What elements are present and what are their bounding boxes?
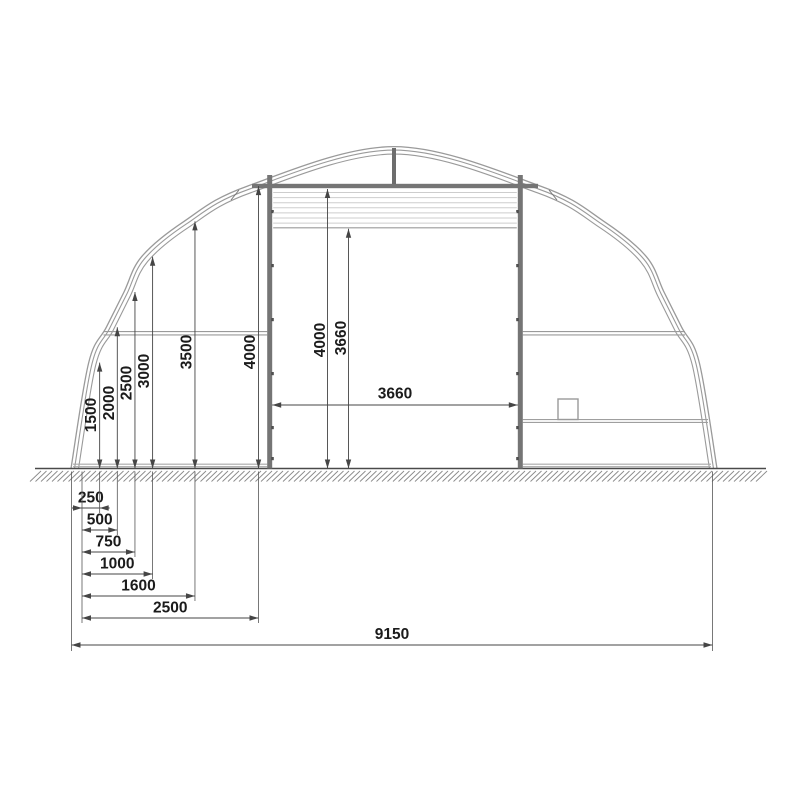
ground-hatch-stroke: [360, 471, 371, 482]
ground-hatch-stroke: [520, 471, 531, 482]
ground-hatch-stroke: [355, 471, 366, 482]
ground-hatch-stroke: [47, 471, 58, 482]
ground-hatch-stroke: [569, 471, 580, 482]
ground-hatch-stroke: [685, 471, 696, 482]
ground-hatch-stroke: [674, 471, 685, 482]
ground-hatch-stroke: [36, 471, 47, 482]
dimension-arrow-right: [126, 549, 135, 554]
ground-hatch-stroke: [531, 471, 542, 482]
ground-hatch-stroke: [564, 471, 575, 482]
ground-hatch-stroke: [206, 471, 217, 482]
ground-hatch-stroke: [278, 471, 289, 482]
ground-hatch-stroke: [503, 471, 514, 482]
door-header-beam: [252, 184, 538, 188]
ground-hatch-stroke: [388, 471, 399, 482]
dimension-arrow-up: [325, 189, 330, 198]
dimension-arrow-right: [186, 593, 195, 598]
ground-hatch-stroke: [157, 471, 168, 482]
ground-hatch-stroke: [305, 471, 316, 482]
ground-hatch-stroke: [613, 471, 624, 482]
dimension-arrow-left: [82, 549, 91, 554]
post-joint-tick: [516, 264, 519, 267]
ground-hatch-stroke: [481, 471, 492, 482]
post-joint-tick: [271, 264, 274, 267]
ground-hatch-stroke: [734, 471, 745, 482]
ground-hatch-stroke: [102, 471, 113, 482]
ground-hatch-stroke: [217, 471, 228, 482]
ground-hatch-stroke: [657, 471, 668, 482]
ground-hatch-stroke: [371, 471, 382, 482]
dim-label-height-2000: 2000: [101, 386, 118, 420]
dimension-arrow-up: [132, 292, 137, 301]
dim-label-offset-750: 750: [96, 534, 122, 551]
dimension-arrow-right: [509, 402, 518, 407]
ground-hatch-stroke: [327, 471, 338, 482]
ground-hatch-stroke: [184, 471, 195, 482]
post-joint-tick: [271, 372, 274, 375]
ground-hatch-stroke: [289, 471, 300, 482]
post-joint-tick: [516, 457, 519, 460]
ground-hatch-stroke: [399, 471, 410, 482]
ground-hatch-stroke: [239, 471, 250, 482]
post-joint-tick: [516, 318, 519, 321]
ground-hatch-stroke: [729, 471, 740, 482]
ground-hatch-stroke: [751, 471, 762, 482]
ground-hatch-stroke: [641, 471, 652, 482]
dimension-arrow-left: [82, 615, 91, 620]
ground-hatch-stroke: [256, 471, 267, 482]
ground-hatch-stroke: [498, 471, 509, 482]
ground-hatch-stroke: [338, 471, 349, 482]
ground-hatch-stroke: [223, 471, 234, 482]
dim-label-height-4000: 4000: [242, 335, 259, 369]
post-joint-tick: [271, 318, 274, 321]
ground-hatch-stroke: [146, 471, 157, 482]
ground-hatch-stroke: [30, 471, 41, 482]
dimension-arrow-right: [250, 615, 259, 620]
ground-hatch-stroke: [514, 471, 525, 482]
ground-hatch-stroke: [701, 471, 712, 482]
ground-hatch-stroke: [492, 471, 503, 482]
ground-hatch-stroke: [113, 471, 124, 482]
dimension-arrow-left: [272, 402, 281, 407]
ground-hatch-stroke: [668, 471, 679, 482]
ground-hatch-stroke: [646, 471, 657, 482]
door-post: [267, 175, 272, 469]
arch-rib-0: [71, 147, 717, 469]
ground-hatch-stroke: [459, 471, 470, 482]
ground-hatch-stroke: [322, 471, 333, 482]
dim-label-offset-1000: 1000: [100, 556, 134, 573]
ground-hatch-stroke: [696, 471, 707, 482]
ground-hatch-stroke: [58, 471, 69, 482]
ground-hatch-stroke: [366, 471, 377, 482]
dim-label-height-2500: 2500: [118, 366, 135, 400]
dim-label-height-1500: 1500: [83, 398, 100, 432]
ground-hatch-stroke: [404, 471, 415, 482]
dimension-arrow-down: [325, 460, 330, 469]
ground-hatch-stroke: [300, 471, 311, 482]
ground-hatch-stroke: [415, 471, 426, 482]
ground-hatch-stroke: [272, 471, 283, 482]
ground-hatch-stroke: [173, 471, 184, 482]
dimension-annotations: 1500200025003000350040004000366036602505…: [72, 186, 713, 651]
ground-hatch-stroke: [382, 471, 393, 482]
ground-hatch-stroke: [591, 471, 602, 482]
ground-hatch-stroke: [333, 471, 344, 482]
dim-label-door-header: 4000: [312, 323, 329, 357]
ground-hatch-stroke: [135, 471, 146, 482]
post-joint-tick: [271, 426, 274, 429]
ground-hatch-stroke: [454, 471, 465, 482]
ground-hatch-stroke: [140, 471, 151, 482]
ground-hatch-stroke: [349, 471, 360, 482]
ground-hatch-stroke: [476, 471, 487, 482]
ground-hatch-stroke: [41, 471, 52, 482]
ground-hatch-stroke: [426, 471, 437, 482]
ground-hatch-stroke: [63, 471, 74, 482]
ground-hatch-stroke: [267, 471, 278, 482]
dimension-arrow-down: [346, 460, 351, 469]
ground-hatch-stroke: [80, 471, 91, 482]
ground-hatch-stroke: [179, 471, 190, 482]
ground-hatch-stroke: [740, 471, 751, 482]
ground-hatch-stroke: [712, 471, 723, 482]
ground-hatch-stroke: [586, 471, 597, 482]
post-joint-tick: [271, 457, 274, 460]
dimension-arrow-up: [192, 221, 197, 230]
ground-hatch-stroke: [547, 471, 558, 482]
ground-hatch-stroke: [316, 471, 327, 482]
dim-label-offset-500: 500: [87, 512, 113, 529]
ground-hatch-stroke: [536, 471, 547, 482]
ground-hatch-stroke: [107, 471, 118, 482]
ground-hatch-stroke: [261, 471, 272, 482]
dimension-arrow-left: [82, 571, 91, 576]
small-box-on-shelf: [558, 399, 578, 420]
ground-hatch-stroke: [311, 471, 322, 482]
ground-hatch-stroke: [525, 471, 536, 482]
dim-label-offset-2500: 2500: [153, 600, 187, 617]
ground-hatch-stroke: [69, 471, 80, 482]
ground-hatch-stroke: [124, 471, 135, 482]
ground-hatch-stroke: [118, 471, 129, 482]
ground-hatch-stroke: [245, 471, 256, 482]
ground-hatch-stroke: [52, 471, 63, 482]
ground-hatch-stroke: [129, 471, 140, 482]
ground-hatch-stroke: [624, 471, 635, 482]
ground-hatch-stroke: [228, 471, 239, 482]
ground-hatch-stroke: [690, 471, 701, 482]
ground-hatch-stroke: [294, 471, 305, 482]
ground-hatch-stroke: [470, 471, 481, 482]
ground-hatch-stroke: [212, 471, 223, 482]
ground-hatch-stroke: [635, 471, 646, 482]
ground-hatch-stroke: [718, 471, 729, 482]
ground-hatch-stroke: [96, 471, 107, 482]
ground-hatch-stroke: [162, 471, 173, 482]
ground-hatch-stroke: [250, 471, 261, 482]
ground-hatch-stroke: [487, 471, 498, 482]
ground: [30, 469, 767, 482]
dimension-arrow-left: [72, 642, 81, 647]
ground-hatch-stroke: [756, 471, 767, 482]
ground-hatch-stroke: [432, 471, 443, 482]
dim-label-total-width: 9150: [375, 626, 409, 643]
ground-hatch-stroke: [234, 471, 245, 482]
dimension-arrow-left: [82, 593, 91, 598]
dim-label-height-3000: 3000: [136, 354, 153, 388]
ground-hatch-stroke: [74, 471, 85, 482]
dimension-arrow-up: [97, 363, 102, 372]
ground-hatch-stroke: [608, 471, 619, 482]
ground-hatch-stroke: [437, 471, 448, 482]
ground-hatch-stroke: [465, 471, 476, 482]
ground-hatch-stroke: [707, 471, 718, 482]
ground-hatch-stroke: [283, 471, 294, 482]
dim-label-offset-1600: 1600: [121, 578, 155, 595]
ground-hatch-stroke: [619, 471, 630, 482]
ground-hatch-stroke: [558, 471, 569, 482]
dimension-arrow-right: [144, 571, 153, 576]
ground-hatch-stroke: [663, 471, 674, 482]
ground-hatch-stroke: [448, 471, 459, 482]
ground-hatch-stroke: [393, 471, 404, 482]
ground-hatch-stroke: [443, 471, 454, 482]
ground-hatch-stroke: [201, 471, 212, 482]
ground-hatch-stroke: [377, 471, 388, 482]
dim-label-door-clear-height: 3660: [333, 321, 350, 355]
ground-hatch-stroke: [575, 471, 586, 482]
dim-label-height-3500: 3500: [178, 335, 195, 369]
ground-hatch-stroke: [421, 471, 432, 482]
ground-hatch-stroke: [509, 471, 520, 482]
dimension-arrow-right: [704, 642, 713, 647]
ground-hatch-stroke: [553, 471, 564, 482]
ground-hatch-stroke: [630, 471, 641, 482]
cross-section-drawing: 1500200025003000350040004000366036602505…: [0, 0, 800, 800]
apex-strut: [392, 148, 396, 184]
ground-hatch-stroke: [85, 471, 96, 482]
arch-rib-2: [79, 154, 710, 468]
dimension-arrow-up: [346, 229, 351, 238]
ground-hatch-stroke: [652, 471, 663, 482]
ground-hatch-stroke: [679, 471, 690, 482]
post-joint-tick: [516, 426, 519, 429]
ground-hatch-stroke: [602, 471, 613, 482]
ground-hatch-stroke: [580, 471, 591, 482]
ground-hatch-stroke: [168, 471, 179, 482]
post-joint-tick: [516, 372, 519, 375]
ground-hatch-stroke: [597, 471, 608, 482]
dim-label-door-width: 3660: [378, 386, 412, 403]
ground-hatch-stroke: [195, 471, 206, 482]
technical-drawing-page: 1500200025003000350040004000366036602505…: [0, 0, 800, 800]
door-post: [518, 175, 523, 469]
arch-shell: [71, 147, 717, 469]
ground-hatch-stroke: [745, 471, 756, 482]
ground-hatch-stroke: [542, 471, 553, 482]
ground-hatch-stroke: [723, 471, 734, 482]
ground-hatch-stroke: [410, 471, 421, 482]
ground-hatch-stroke: [344, 471, 355, 482]
building-structure: [73, 148, 711, 469]
